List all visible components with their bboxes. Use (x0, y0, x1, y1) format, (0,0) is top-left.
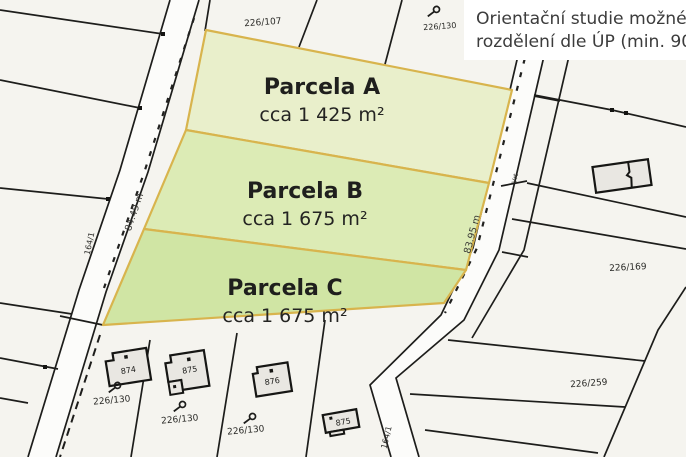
building-876: 876 (252, 362, 292, 396)
title-block: Orientační studie možného rozdělení dle … (464, 0, 686, 60)
study-title-line2: rozdělení dle ÚP (min. 900 m²) (476, 30, 686, 52)
cadastral-map: 874 875 876 875 (0, 0, 686, 457)
parcel-b-name: Parcela B (247, 179, 363, 204)
node-dot (161, 32, 165, 36)
node-dot (624, 111, 628, 115)
study-title-line1: Orientační studie možného (476, 9, 686, 29)
parcel-c-area: cca 1 675 m² (222, 305, 347, 327)
node-dot (138, 106, 142, 110)
parcel-a-name: Parcela A (264, 75, 380, 100)
building-874: 874 (105, 348, 151, 386)
parcel-a-area: cca 1 425 m² (259, 104, 384, 126)
building-point (124, 355, 128, 359)
node-dot (610, 108, 614, 112)
node-dot (106, 197, 110, 201)
lot-label-226-169: 226/169 (609, 262, 647, 274)
node-dot (43, 365, 47, 369)
building-point (173, 385, 176, 388)
parcel-c-name: Parcela C (227, 276, 342, 301)
building-point (269, 369, 273, 373)
building-point (187, 357, 191, 361)
parcel-b-area: cca 1 675 m² (242, 208, 367, 230)
building-point (329, 416, 332, 419)
cadastral-study-screenshot: 874 875 876 875 (0, 0, 686, 457)
